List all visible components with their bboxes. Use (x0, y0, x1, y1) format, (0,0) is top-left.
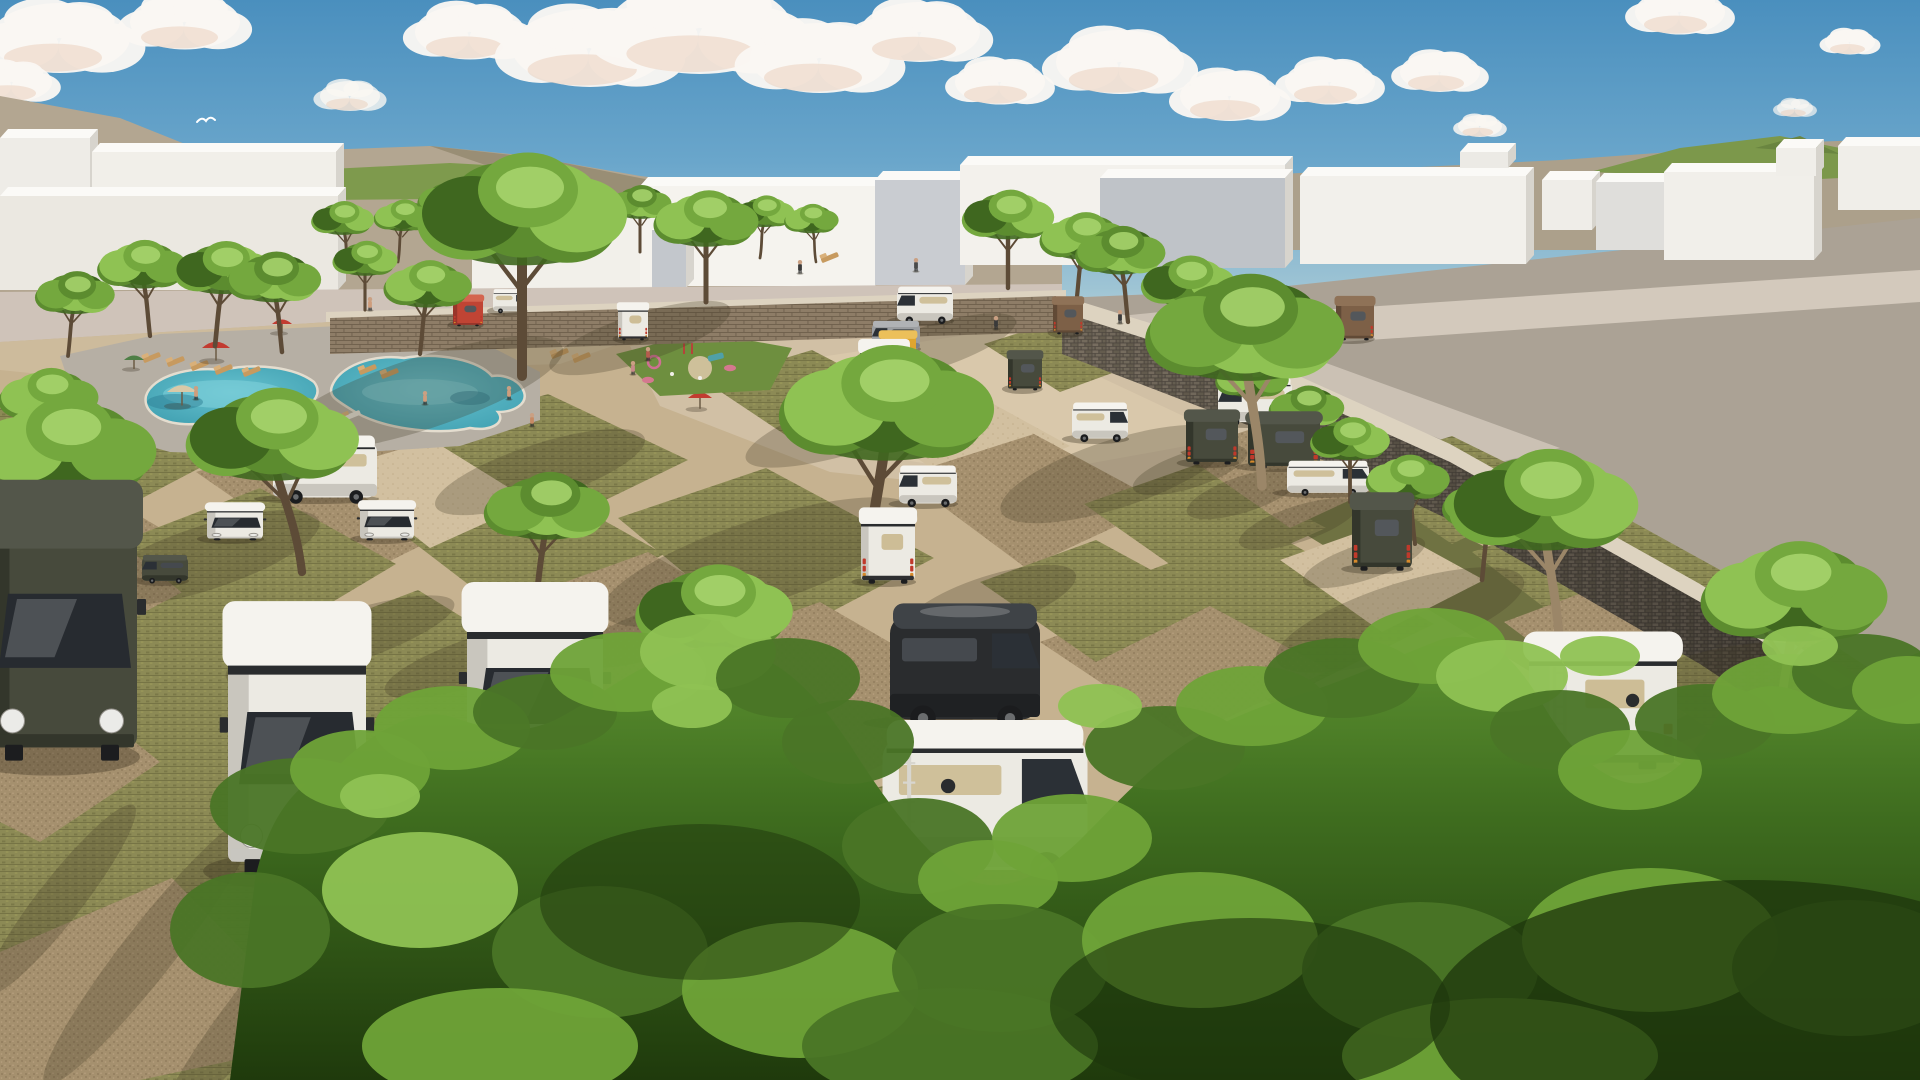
camper-white-rear (613, 302, 650, 344)
cloud (1625, 0, 1735, 35)
camper-brown-rear (1048, 296, 1085, 338)
canopy-cluster (652, 684, 732, 728)
camper-white-front (197, 502, 266, 544)
play-blob (724, 365, 736, 371)
building-block (1664, 163, 1822, 260)
canopy-cluster (322, 832, 518, 948)
building-block (1542, 171, 1600, 230)
canopy-cluster (540, 824, 860, 980)
play-dot (670, 372, 674, 376)
canopy-cluster (782, 700, 914, 784)
canopy-cluster (1560, 636, 1640, 676)
building-block (1460, 143, 1516, 168)
canopy-cluster (1762, 626, 1838, 666)
camper-dark-rear (1341, 492, 1414, 574)
camper-dark-rear (1177, 409, 1240, 468)
building-block (875, 171, 973, 285)
canopy-cluster (992, 794, 1152, 882)
campsite-3d-render (0, 0, 1920, 1080)
camper-dark-rear (1002, 350, 1043, 394)
camper-white-rear (851, 507, 917, 587)
building-block (1838, 137, 1920, 210)
play-blob (642, 377, 654, 383)
camper-dark-front (0, 480, 146, 776)
building-block (1300, 167, 1534, 264)
render-canvas (0, 0, 1920, 1080)
building-block (1776, 139, 1824, 176)
canopy-cluster (340, 774, 420, 818)
canopy-cluster (170, 872, 330, 988)
play-dot (698, 376, 702, 380)
camper-white-front (350, 500, 417, 544)
canopy-cluster (1058, 684, 1142, 728)
